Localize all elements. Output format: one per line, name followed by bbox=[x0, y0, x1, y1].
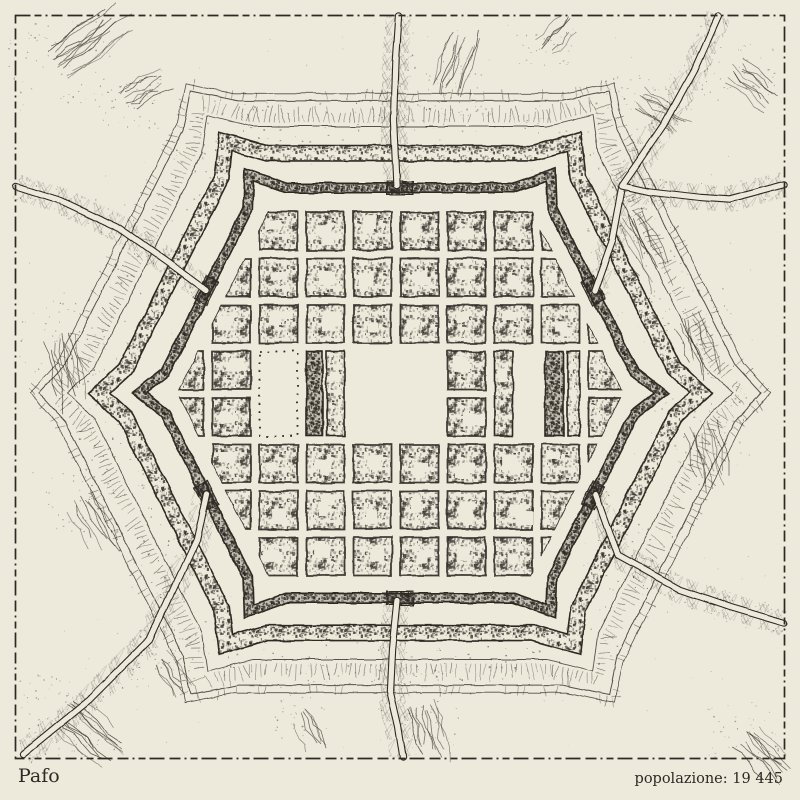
dense-block bbox=[307, 352, 323, 437]
city-block bbox=[448, 352, 486, 390]
narrow-block bbox=[568, 352, 580, 437]
dense-block bbox=[546, 352, 564, 437]
city-block bbox=[354, 212, 392, 250]
narrow-block bbox=[495, 352, 513, 437]
city-block bbox=[448, 491, 486, 529]
city-block bbox=[448, 305, 486, 343]
city-block bbox=[354, 445, 392, 483]
city-block bbox=[307, 305, 345, 343]
city-block bbox=[260, 259, 298, 297]
city-block bbox=[448, 212, 486, 250]
city-block bbox=[401, 305, 439, 343]
city-block bbox=[354, 259, 392, 297]
city-block bbox=[542, 305, 580, 343]
city-block bbox=[401, 538, 439, 576]
city-block bbox=[307, 491, 345, 529]
city-block bbox=[260, 212, 298, 250]
city-block bbox=[495, 538, 533, 576]
city-block bbox=[307, 212, 345, 250]
city-block bbox=[495, 212, 533, 250]
city-block bbox=[495, 305, 533, 343]
city-block bbox=[495, 445, 533, 483]
city-block bbox=[495, 491, 534, 529]
city-block bbox=[354, 538, 392, 576]
city-block bbox=[260, 445, 298, 483]
city-block bbox=[448, 445, 486, 483]
city-block bbox=[354, 491, 392, 529]
city-block bbox=[401, 212, 439, 250]
city-block bbox=[260, 491, 298, 529]
city-block bbox=[213, 352, 251, 390]
city-block bbox=[448, 259, 486, 297]
narrow-block bbox=[327, 352, 345, 437]
map-page: Pafo popolazione: 19 445 bbox=[0, 0, 800, 800]
city-block bbox=[260, 305, 298, 343]
north-road bbox=[394, 16, 399, 186]
city-block bbox=[448, 538, 486, 576]
city-block bbox=[307, 259, 345, 297]
population-label: popolazione: 19 445 bbox=[635, 771, 783, 787]
city-block bbox=[213, 398, 251, 436]
city-block bbox=[448, 398, 486, 436]
city-block bbox=[542, 445, 580, 483]
city-block bbox=[401, 259, 439, 297]
terrain-layer bbox=[0, 0, 800, 800]
city-block bbox=[307, 538, 345, 576]
city-block bbox=[213, 305, 251, 343]
city-block bbox=[354, 305, 392, 343]
map-title: Pafo bbox=[18, 765, 60, 787]
city-map-canvas: Pafo popolazione: 19 445 bbox=[0, 0, 800, 800]
city-block bbox=[401, 491, 439, 529]
city-block bbox=[401, 445, 439, 483]
city-block bbox=[495, 259, 533, 297]
city-block bbox=[307, 445, 345, 483]
